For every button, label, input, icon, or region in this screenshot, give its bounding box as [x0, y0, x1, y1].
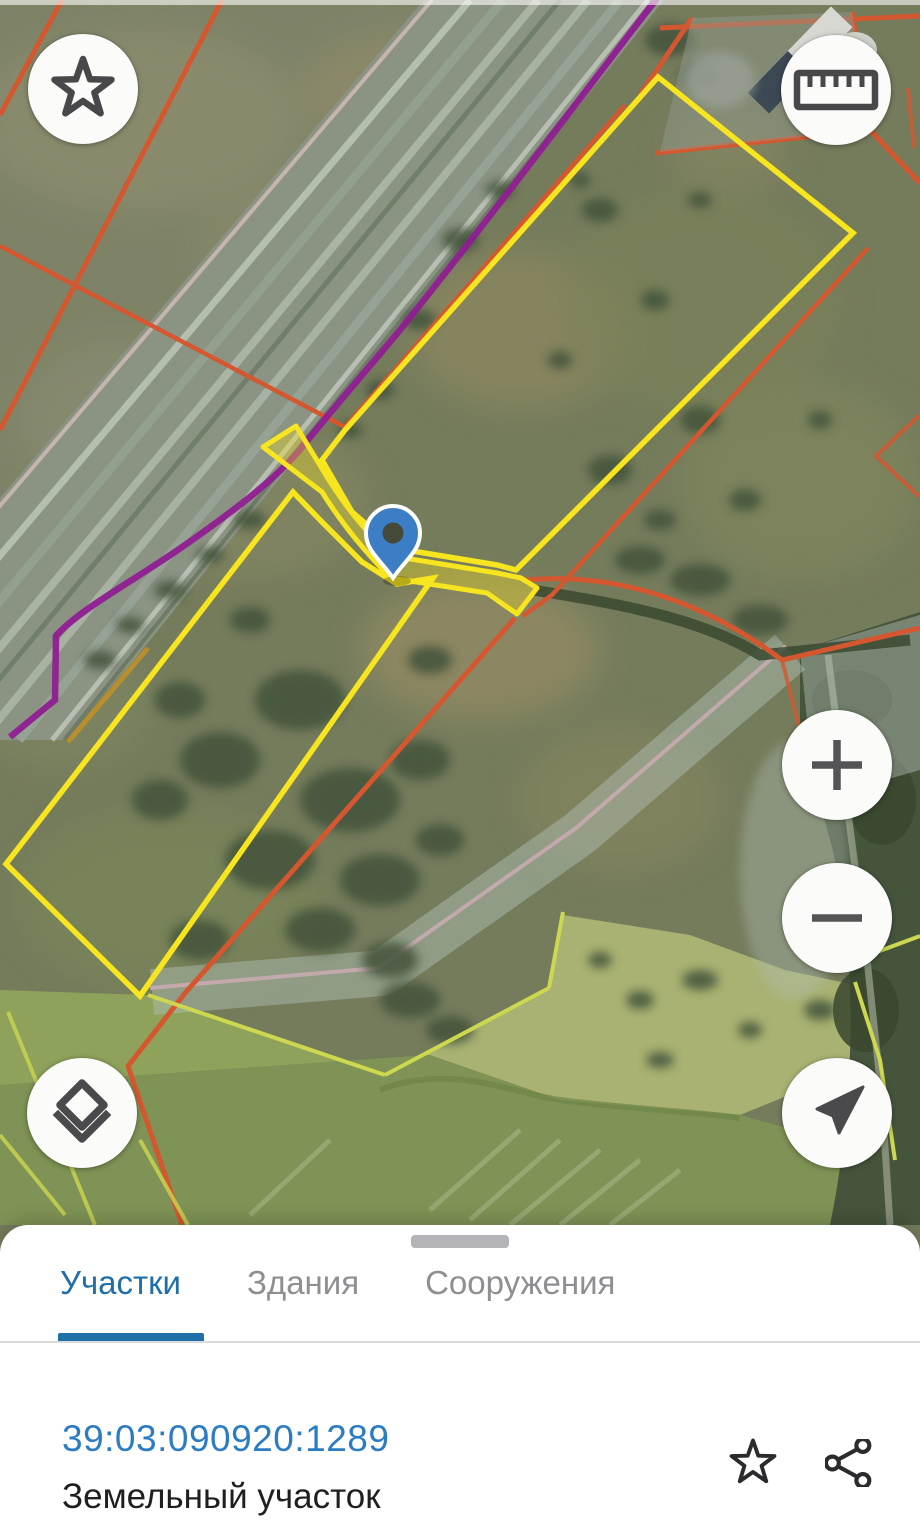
- layers-icon: [27, 1058, 137, 1168]
- locate-button[interactable]: [782, 1058, 892, 1168]
- layers-button[interactable]: [27, 1058, 137, 1168]
- tab-constructions[interactable]: Сооружения: [425, 1261, 615, 1305]
- tab-parcels[interactable]: Участки: [60, 1261, 181, 1305]
- bottom-sheet: Участки Здания Сооружения 39:03:090920:1…: [0, 1225, 920, 1536]
- app-screen: Участки Здания Сооружения 39:03:090920:1…: [0, 0, 920, 1536]
- measure-button[interactable]: [781, 35, 891, 145]
- map-canvas[interactable]: [0, 0, 920, 1225]
- ruler-icon: [781, 35, 891, 145]
- minus-icon: [782, 863, 892, 973]
- tab-bar: Участки Здания Сооружения: [60, 1261, 615, 1305]
- share-parcel-button[interactable]: [825, 1439, 873, 1487]
- star-icon: [28, 34, 138, 144]
- zoom-in-button[interactable]: [782, 710, 892, 820]
- drag-handle[interactable]: [411, 1235, 509, 1248]
- parcel-number-link[interactable]: 39:03:090920:1289: [62, 1418, 389, 1460]
- navigation-arrow-icon: [782, 1058, 892, 1168]
- parcel-type-label: Земельный участок: [62, 1477, 381, 1517]
- share-icon: [825, 1439, 873, 1487]
- parcel-actions: [727, 1437, 873, 1489]
- satellite-map[interactable]: [0, 0, 920, 1225]
- favorites-button[interactable]: [28, 34, 138, 144]
- plus-icon: [782, 710, 892, 820]
- divider: [0, 1341, 920, 1343]
- status-bar-strip: [0, 0, 920, 5]
- tab-buildings[interactable]: Здания: [247, 1261, 359, 1305]
- zoom-out-button[interactable]: [782, 863, 892, 973]
- star-icon: [727, 1437, 779, 1489]
- favorite-parcel-button[interactable]: [727, 1437, 779, 1489]
